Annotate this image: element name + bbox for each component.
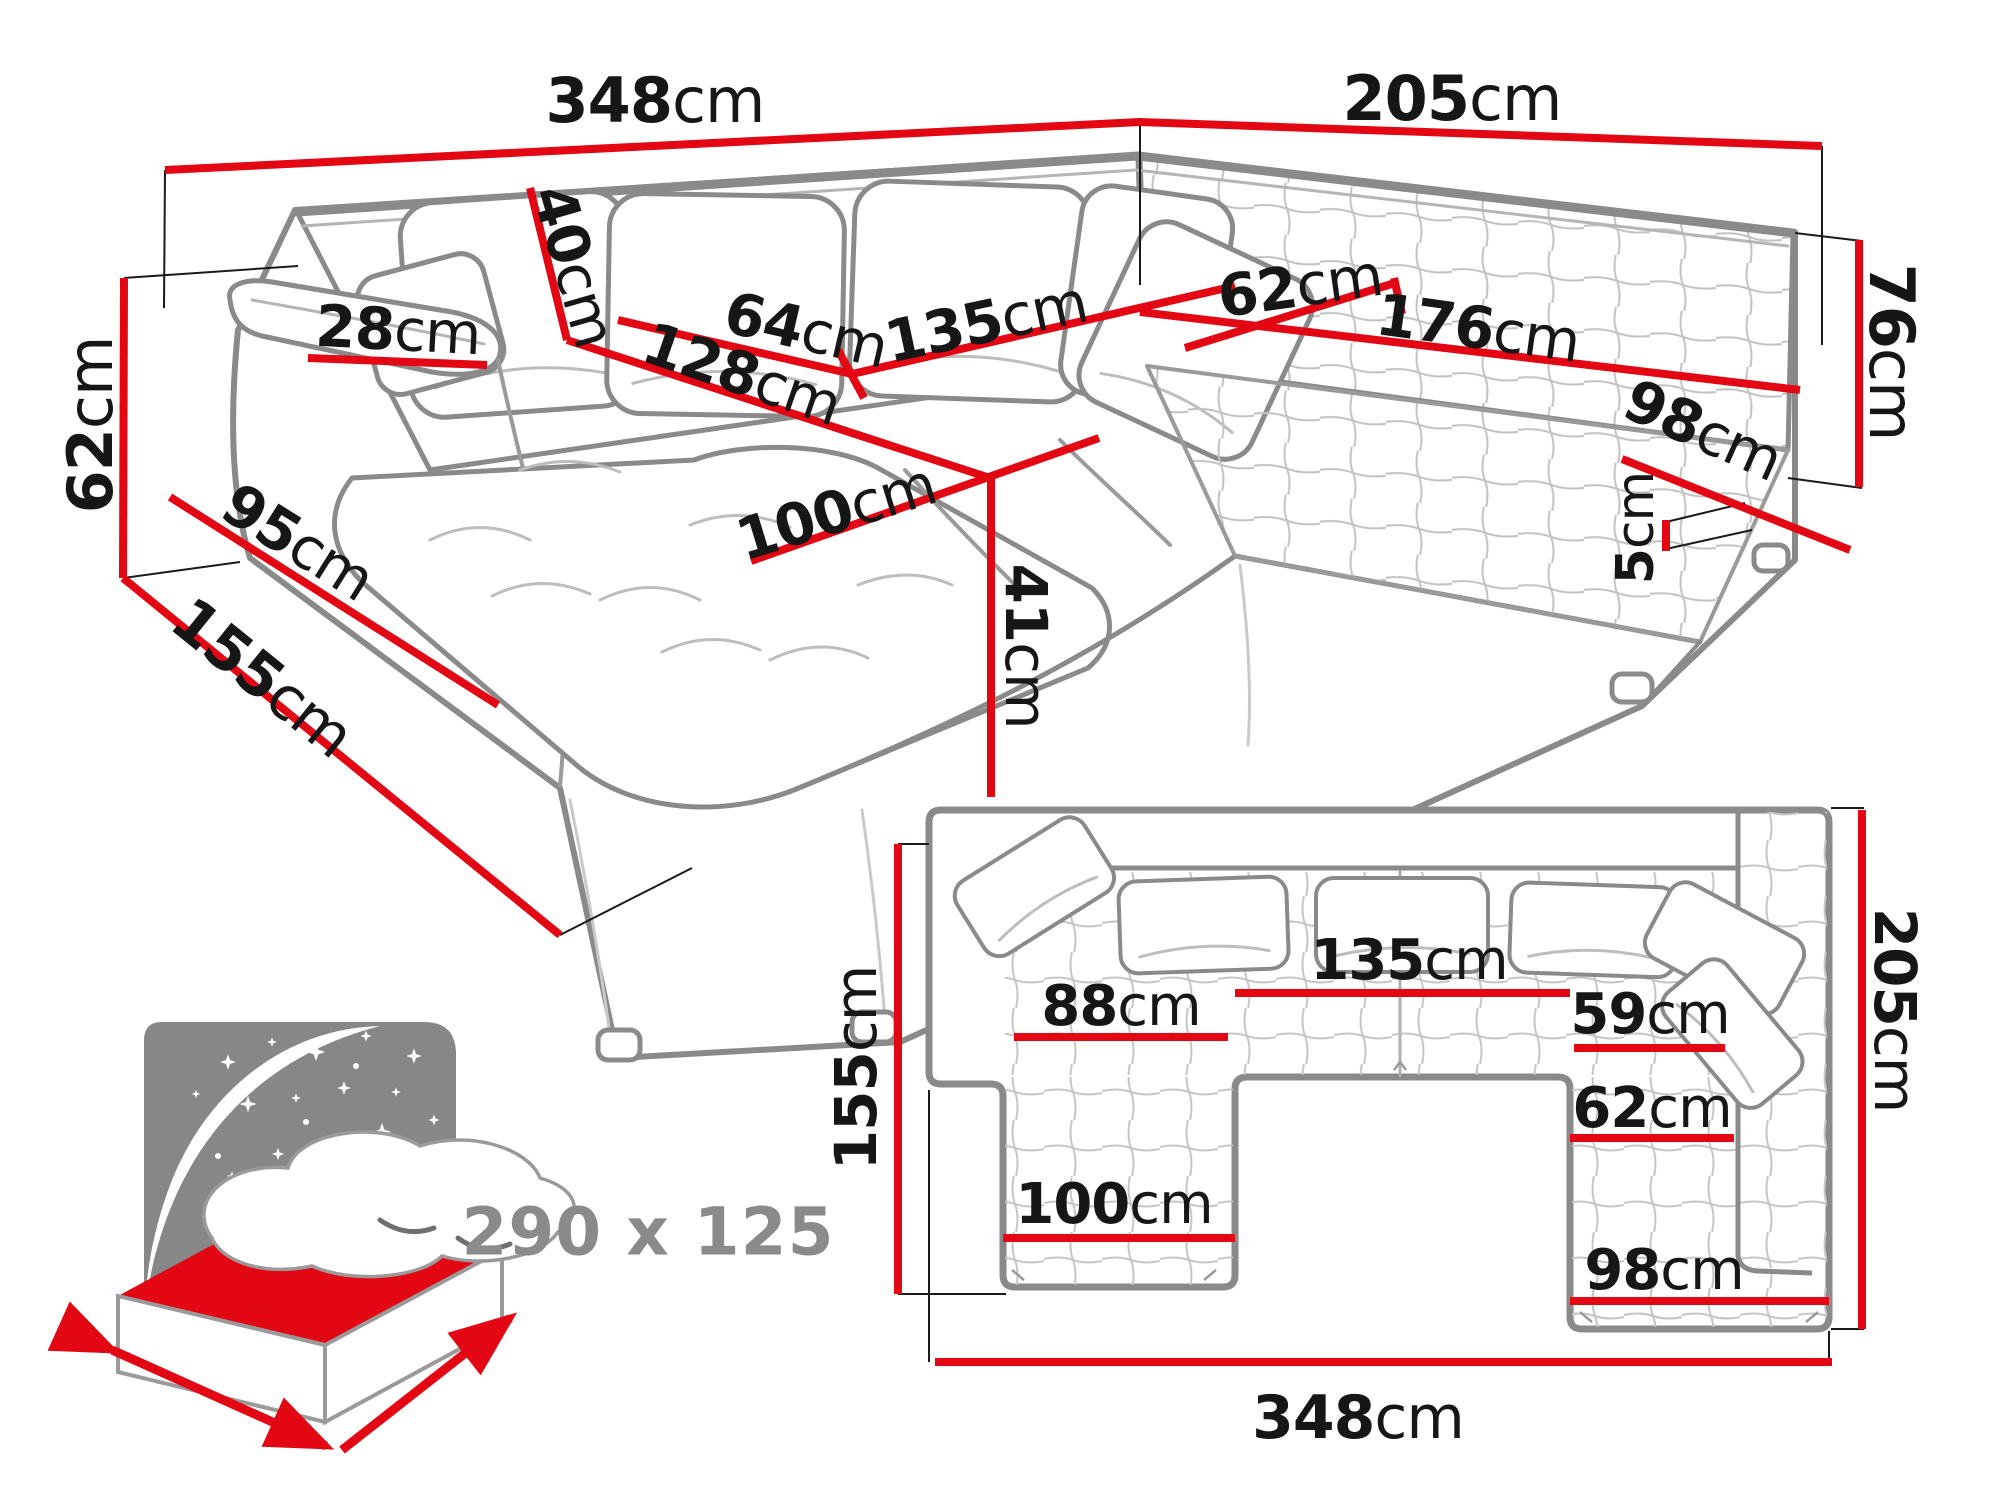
plan-dim-total-width: 348cm <box>1252 1383 1464 1453</box>
plan-dim-98: 98cm <box>1584 1238 1743 1303</box>
dim-armrest-height: 62cm <box>54 337 127 514</box>
sleeping-function-icon: 290 x 125 <box>112 1022 835 1450</box>
dim-seat-height: 41cm <box>992 563 1060 728</box>
dim-right-width: 205cm <box>1343 62 1562 135</box>
plan-dim-59: 59cm <box>1570 982 1729 1047</box>
plan-dim-135: 135cm <box>1310 928 1507 993</box>
top-view: 155cm 88cm 135cm 59cm 62cm 100cm 98cm 20… <box>822 808 1929 1453</box>
plan-dim-62: 62cm <box>1572 1076 1731 1141</box>
plan-dim-left-length: 155cm <box>822 966 890 1170</box>
dim-back-width: 348cm <box>546 64 765 137</box>
dim-armrest-width: 28cm <box>314 292 482 369</box>
dimension-diagram: 348cm 205cm 76cm 62cm 155cm 95cm 28cm 40… <box>0 0 2000 1500</box>
plan-dim-right-length: 205cm <box>1861 908 1929 1112</box>
bed-size-label: 290 x 125 <box>461 1194 834 1271</box>
dim-backrest-height: 76cm <box>1856 264 1929 441</box>
diagram-canvas: 348cm 205cm 76cm 62cm 155cm 95cm 28cm 40… <box>0 0 2000 1500</box>
plan-dim-88: 88cm <box>1041 974 1200 1039</box>
dim-leg-height: 5cm <box>1606 472 1666 584</box>
plan-dim-100: 100cm <box>1015 1172 1212 1237</box>
